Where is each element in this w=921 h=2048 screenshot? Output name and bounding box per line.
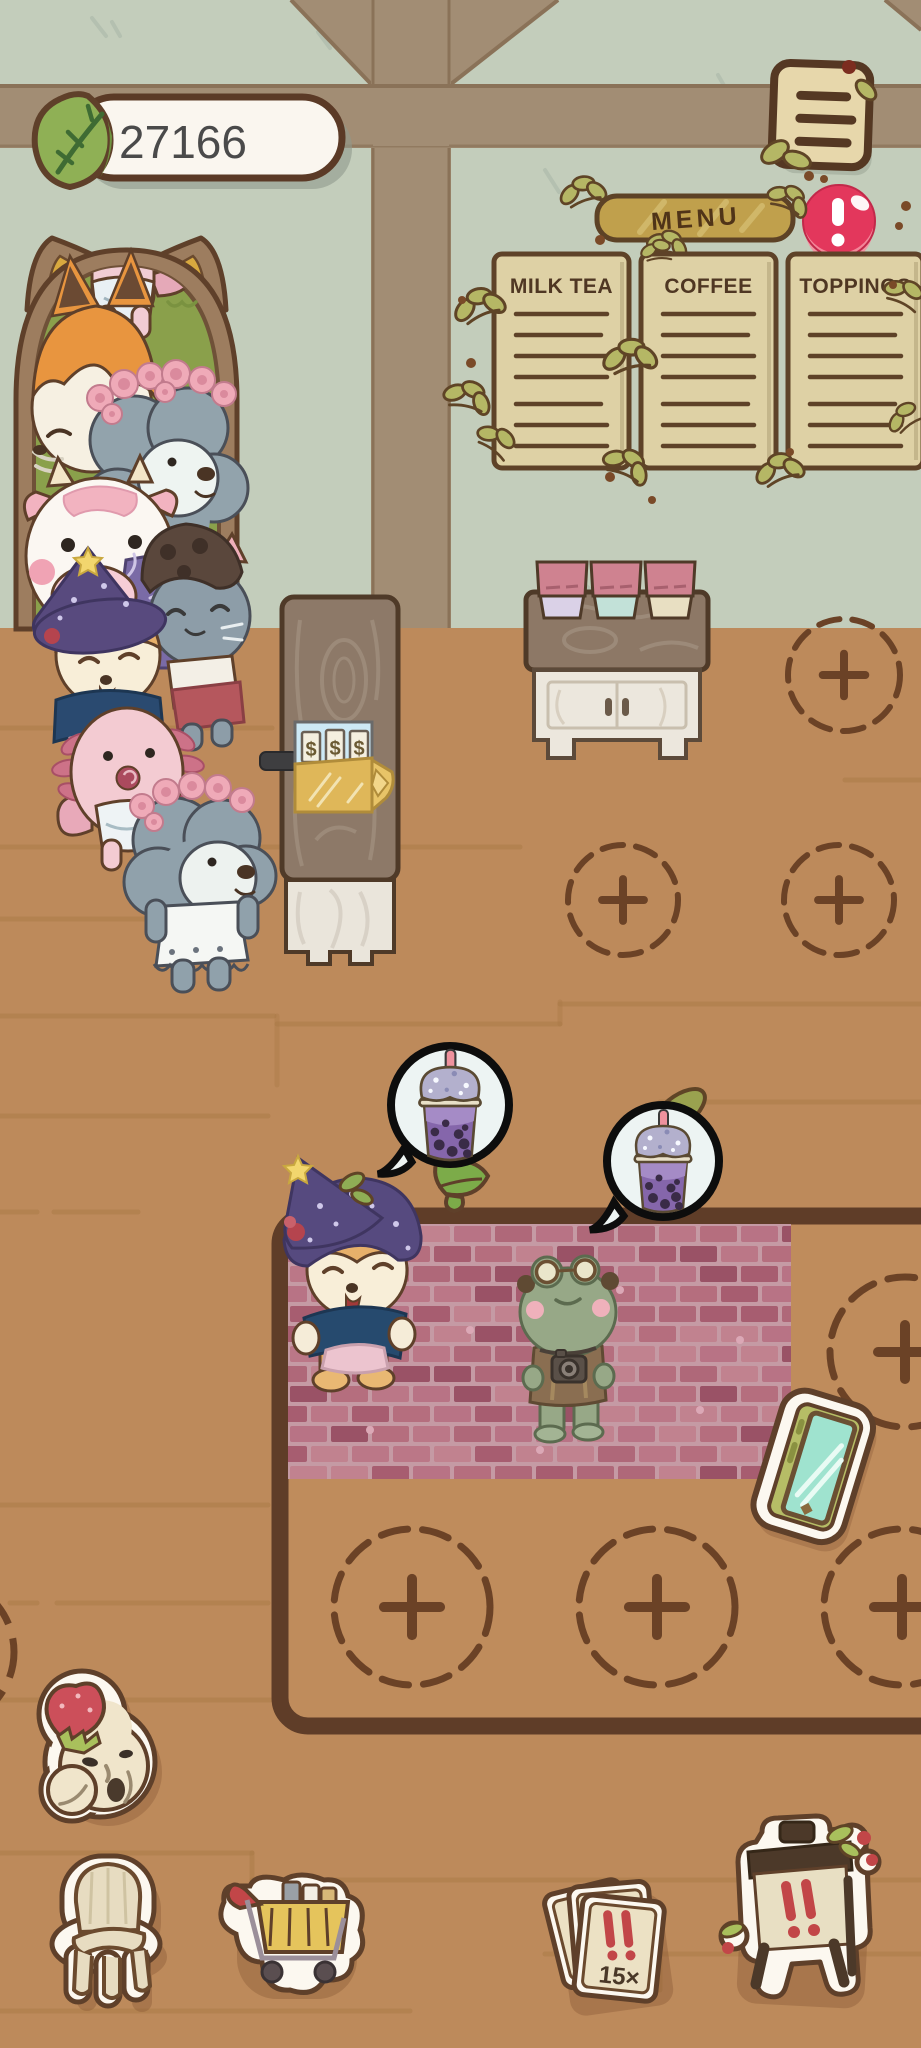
svg-text:MILK TEA: MILK TEA bbox=[510, 275, 613, 298]
svg-text:27166: 27166 bbox=[119, 116, 247, 168]
svg-text:$: $ bbox=[353, 738, 364, 760]
svg-text:15×: 15× bbox=[598, 1961, 641, 1992]
svg-text:COFFEE: COFFEE bbox=[664, 275, 752, 298]
svg-text:$: $ bbox=[329, 738, 340, 760]
svg-text:$: $ bbox=[305, 739, 316, 761]
